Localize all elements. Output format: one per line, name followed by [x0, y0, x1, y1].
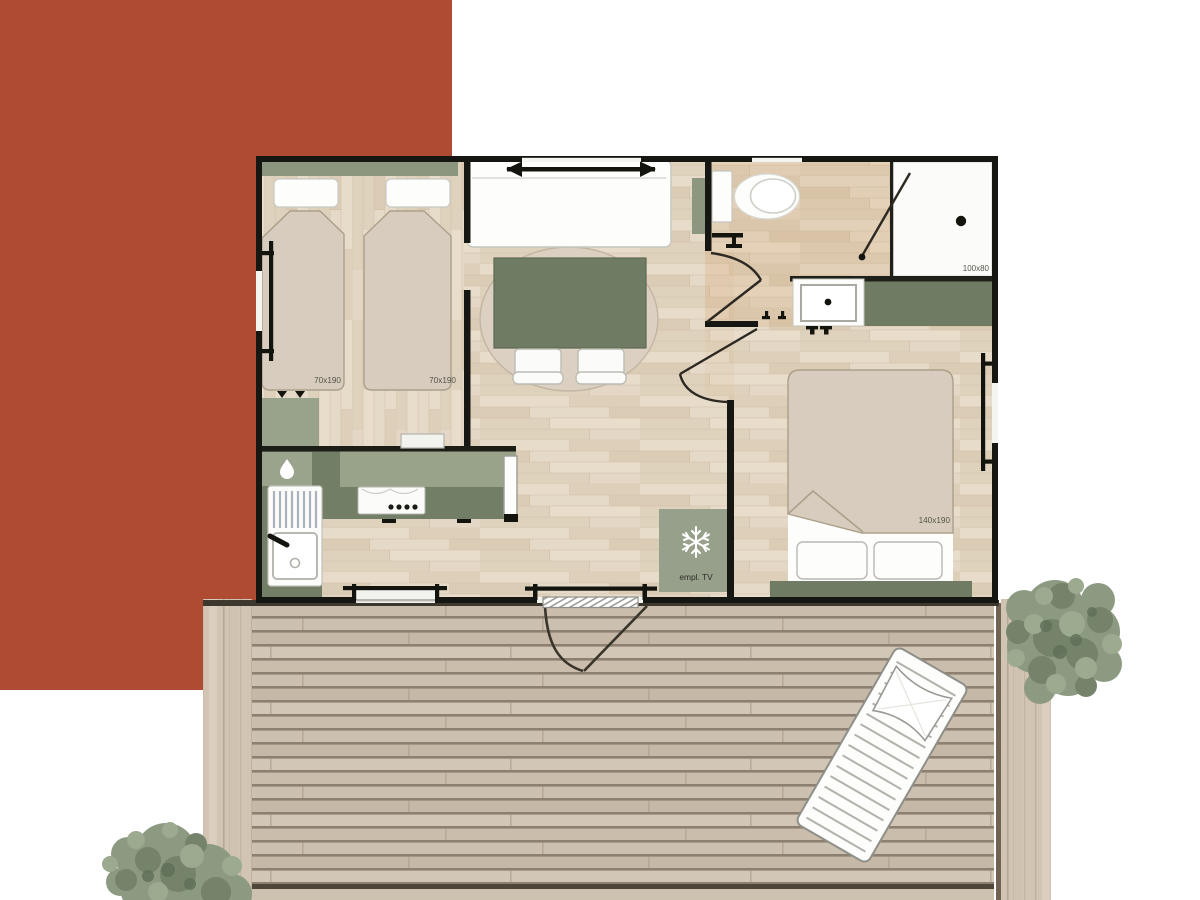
svg-text:70x190: 70x190	[314, 376, 341, 385]
svg-text:empl. TV: empl. TV	[679, 572, 713, 582]
svg-text:70x190: 70x190	[429, 376, 456, 385]
svg-text:100x80: 100x80	[963, 264, 990, 273]
svg-text:140x190: 140x190	[919, 516, 951, 525]
